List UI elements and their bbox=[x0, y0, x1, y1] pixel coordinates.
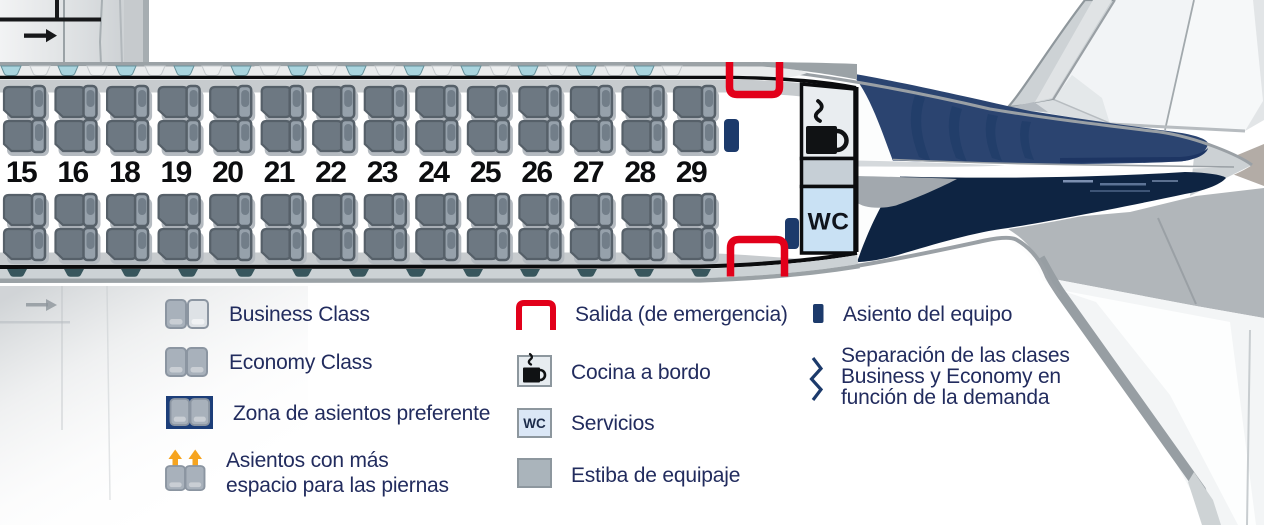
svg-text:18: 18 bbox=[109, 156, 140, 189]
svg-text:WC: WC bbox=[808, 209, 850, 236]
svg-text:24: 24 bbox=[418, 156, 450, 189]
svg-text:Asientos con más: Asientos con más bbox=[226, 449, 389, 472]
svg-text:Business y Economy en: Business y Economy en bbox=[841, 365, 1061, 388]
svg-text:Zona de asientos preferente: Zona de asientos preferente bbox=[233, 402, 490, 425]
svg-text:29: 29 bbox=[676, 156, 707, 189]
svg-text:23: 23 bbox=[367, 156, 398, 189]
svg-text:Salida (de emergencia): Salida (de emergencia) bbox=[575, 303, 788, 326]
svg-text:Business Class: Business Class bbox=[229, 303, 370, 326]
svg-text:Cocina a bordo: Cocina a bordo bbox=[571, 361, 711, 384]
svg-text:26: 26 bbox=[521, 156, 552, 189]
svg-text:25: 25 bbox=[470, 156, 501, 189]
svg-text:19: 19 bbox=[161, 156, 192, 189]
svg-text:20: 20 bbox=[212, 156, 243, 189]
svg-text:WC: WC bbox=[523, 416, 546, 431]
svg-text:28: 28 bbox=[624, 156, 655, 189]
svg-text:16: 16 bbox=[57, 156, 88, 189]
svg-text:función de la demanda: función de la demanda bbox=[841, 386, 1050, 409]
svg-text:Economy Class: Economy Class bbox=[229, 351, 372, 374]
svg-text:15: 15 bbox=[6, 156, 37, 189]
svg-text:21: 21 bbox=[264, 156, 295, 189]
svg-text:Asiento del equipo: Asiento del equipo bbox=[843, 303, 1012, 326]
svg-text:espacio para las piernas: espacio para las piernas bbox=[226, 474, 449, 497]
svg-text:Estiba de equipaje: Estiba de equipaje bbox=[571, 464, 740, 487]
svg-text:Separación de las clases: Separación de las clases bbox=[841, 344, 1070, 367]
svg-text:22: 22 bbox=[315, 156, 346, 189]
svg-text:27: 27 bbox=[573, 156, 604, 189]
svg-text:Servicios: Servicios bbox=[571, 412, 654, 435]
